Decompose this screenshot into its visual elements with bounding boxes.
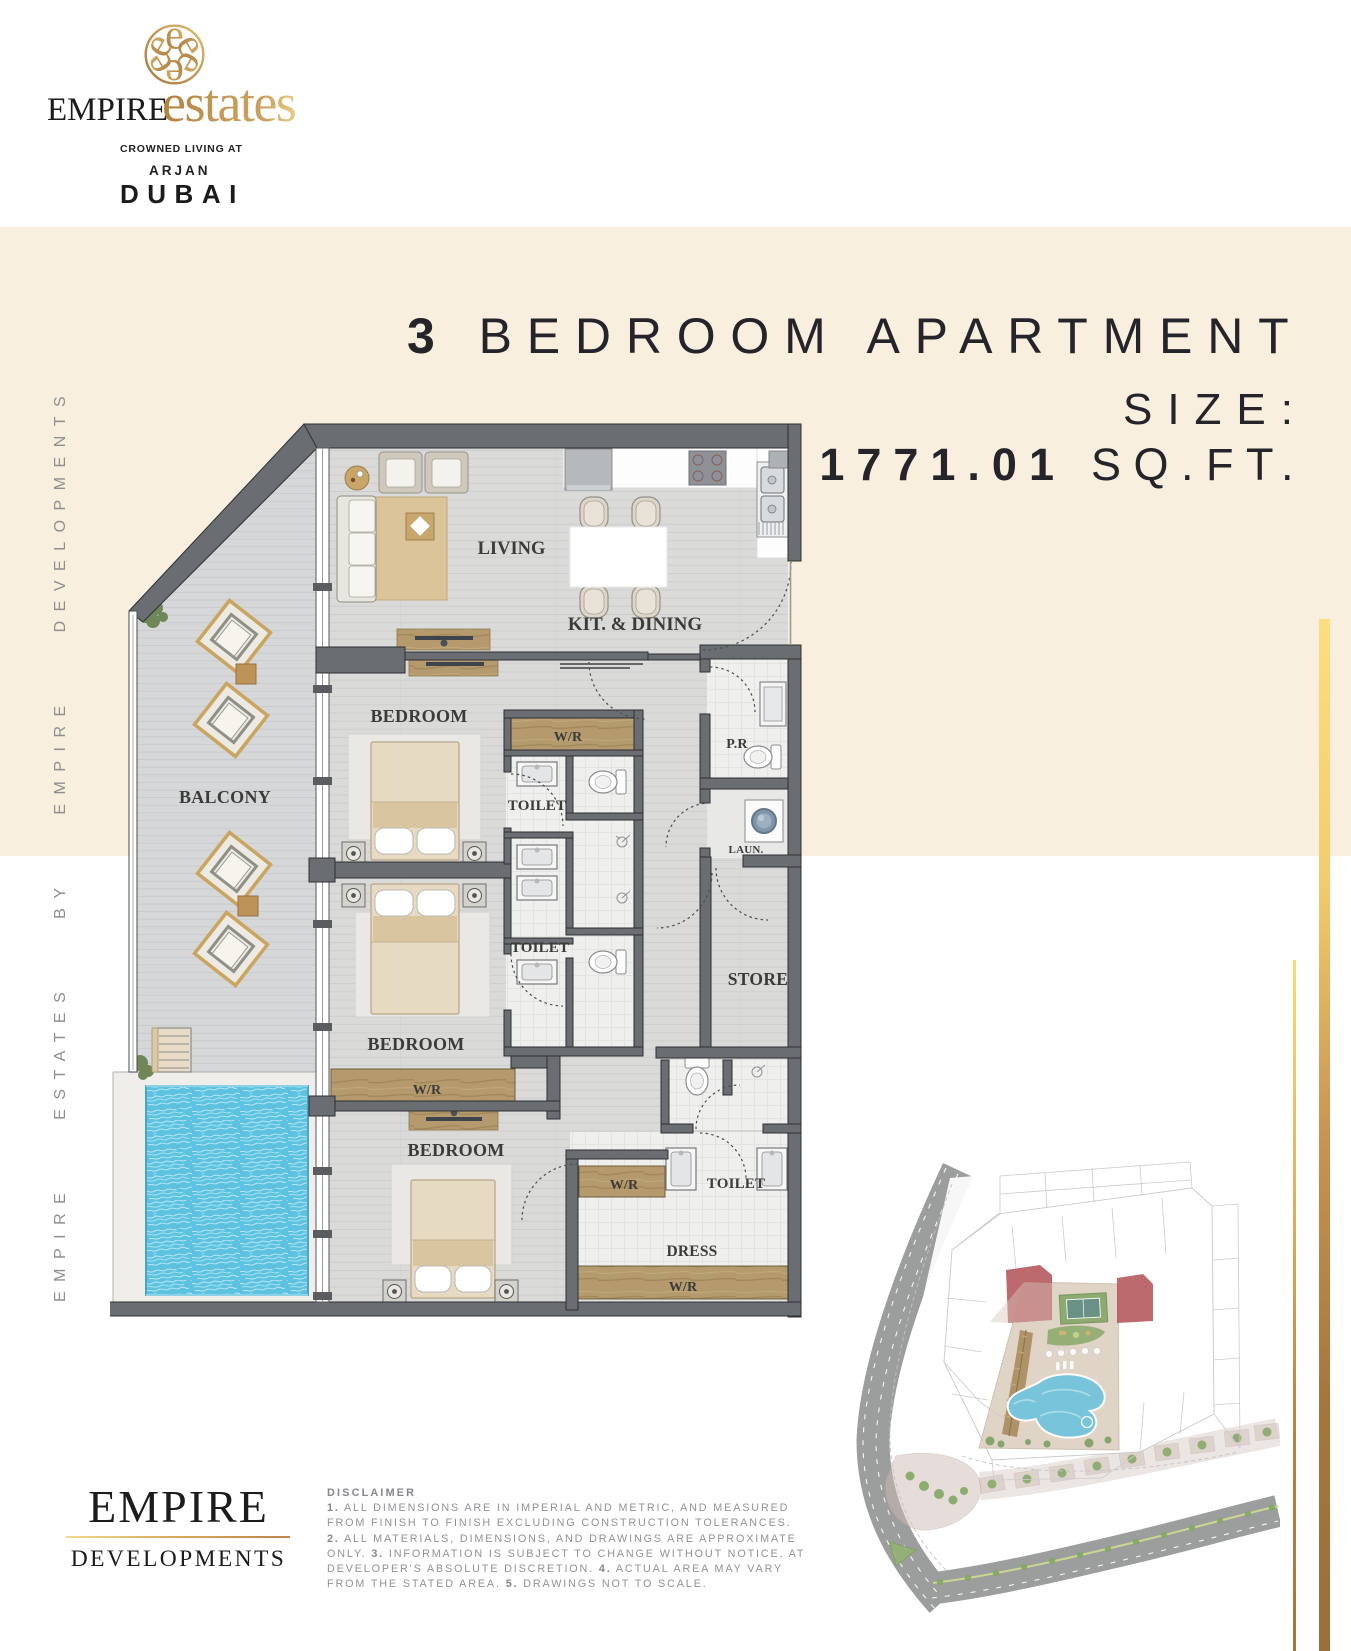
svg-text:TOILET: TOILET [508, 798, 566, 814]
svg-text:STORE: STORE [728, 969, 789, 989]
svg-text:estates: estates [162, 73, 296, 133]
svg-text:P.R: P.R [726, 737, 748, 752]
svg-text:BALCONY: BALCONY [179, 787, 271, 807]
svg-text:W/R: W/R [610, 1178, 639, 1193]
svg-text:EMPIRE: EMPIRE [47, 92, 168, 128]
svg-text:CROWNED LIVING AT: CROWNED LIVING AT [120, 143, 243, 155]
svg-text:ARJAN: ARJAN [149, 163, 211, 178]
svg-text:TOILET: TOILET [707, 1176, 765, 1192]
svg-text:DRESS: DRESS [667, 1243, 718, 1260]
svg-text:KIT. & DINING: KIT. & DINING [568, 614, 702, 635]
svg-text:W/R: W/R [413, 1083, 442, 1098]
svg-text:DUBAI: DUBAI [120, 179, 245, 209]
svg-text:BEDROOM: BEDROOM [407, 1140, 504, 1160]
svg-text:W/R: W/R [554, 730, 583, 745]
svg-text:TOILET: TOILET [511, 940, 569, 956]
svg-text:BEDROOM: BEDROOM [370, 706, 467, 726]
svg-text:BEDROOM: BEDROOM [367, 1034, 464, 1054]
svg-text:W/R: W/R [669, 1280, 698, 1295]
svg-text:LIVING: LIVING [478, 539, 546, 559]
svg-text:LAUN.: LAUN. [729, 844, 764, 856]
